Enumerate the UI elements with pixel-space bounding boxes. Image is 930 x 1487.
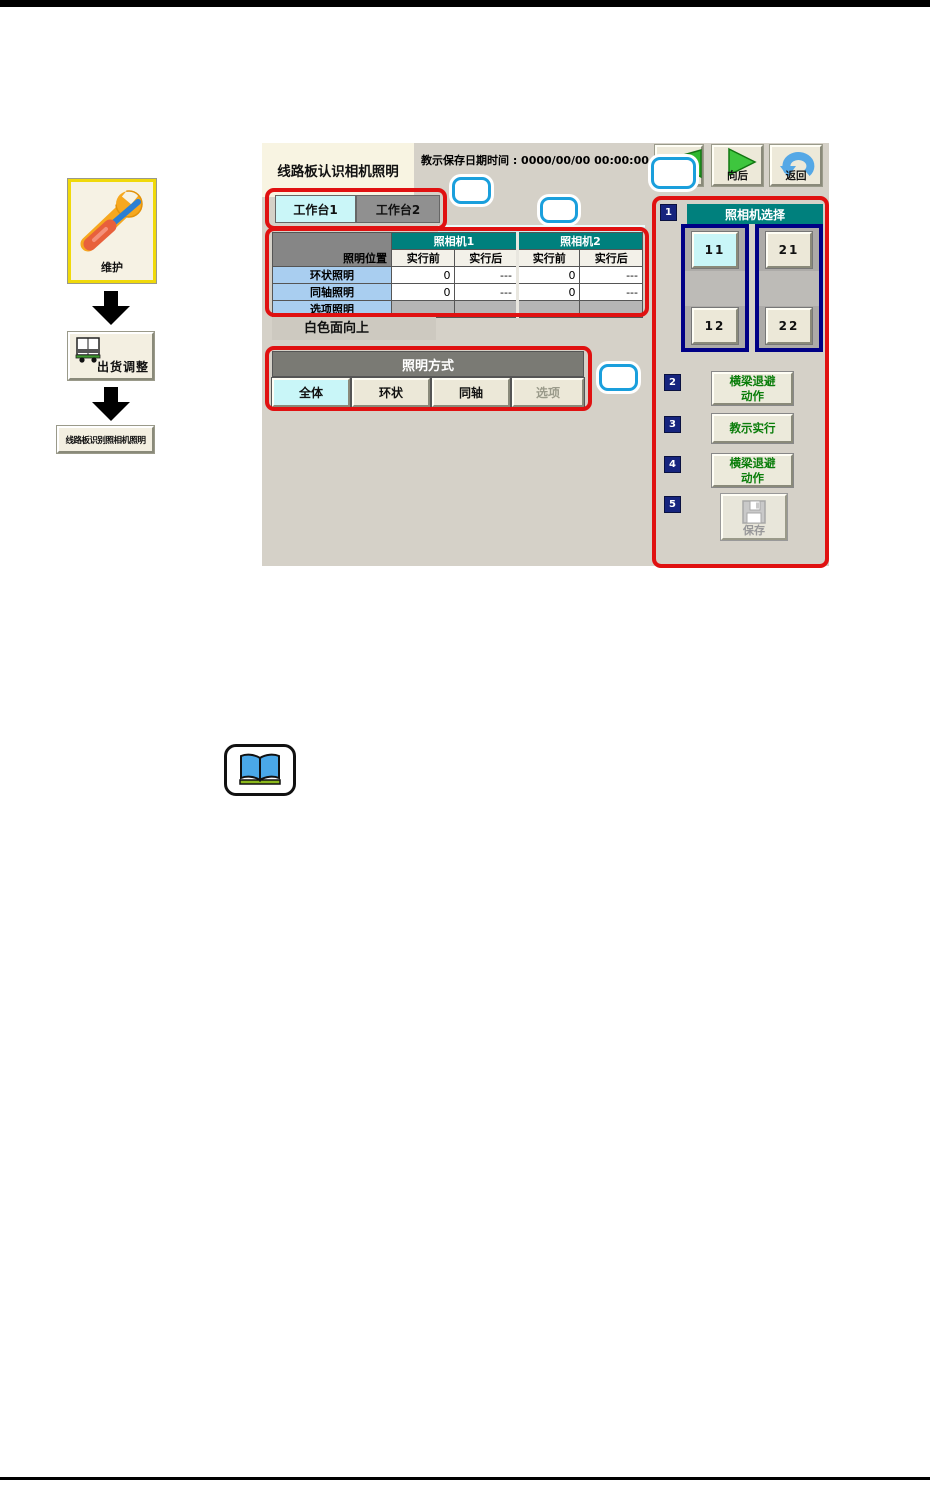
step-5-badge: 5 — [664, 496, 681, 513]
wrench-screwdriver-icon — [76, 186, 148, 256]
subheader-after-2: 实行后 — [580, 250, 643, 267]
forward-label: 向后 — [714, 168, 761, 183]
page-bottom-rule — [0, 1477, 930, 1480]
option-cam1-after — [455, 301, 518, 318]
lighting-mode-header: 照明方式 — [272, 351, 584, 377]
table-row: 环状照明 0 --- 0 --- — [273, 267, 643, 284]
forward-button[interactable]: 向后 — [712, 145, 763, 186]
option-cam2-before — [517, 301, 580, 318]
subheader-before-2: 实行前 — [517, 250, 580, 267]
teach-execute-button[interactable]: 教示实行 — [712, 414, 793, 443]
callout-box-tabs — [452, 177, 491, 204]
down-arrow — [92, 387, 130, 421]
mode-button-ring[interactable]: 环状 — [352, 378, 430, 407]
page-top-rule — [0, 0, 930, 7]
row-label-coaxial: 同轴照明 — [273, 284, 392, 301]
subheader-after-1: 实行后 — [455, 250, 518, 267]
camera1-header: 照相机1 — [391, 233, 517, 250]
camera-column-spacer — [759, 271, 819, 306]
machine-screen: 线路板认识相机照明 教示保存日期时间 : 0000/00/00 00:00:00… — [262, 143, 829, 566]
step-2-badge: 2 — [664, 374, 681, 391]
subheader-before-1: 实行前 — [391, 250, 455, 267]
coaxial-cam2-before[interactable]: 0 — [517, 284, 580, 301]
callout-box-strip — [540, 197, 578, 223]
maintenance-button[interactable]: 维护 — [68, 179, 156, 283]
coaxial-cam1-after: --- — [455, 284, 518, 301]
mode-button-coaxial[interactable]: 同轴 — [432, 378, 510, 407]
camera2-header: 照相机2 — [517, 233, 642, 250]
mode-button-all[interactable]: 全体 — [272, 378, 350, 407]
table-row: 选项照明 — [273, 301, 643, 318]
step-1-badge: 1 — [660, 204, 677, 221]
row-label-option: 选项照明 — [273, 301, 392, 318]
table-corner-label: 照明位置 — [273, 233, 392, 267]
camera-button-22[interactable]: 22 — [766, 308, 812, 344]
camera-column-1: 11 12 — [681, 224, 749, 352]
shipment-adjust-label: 出货调整 — [97, 358, 149, 375]
ring-cam2-after: --- — [580, 267, 643, 284]
lighting-table: 照明位置 照相机1 照相机2 实行前 实行后 实行前 实行后 环状照明 0 --… — [272, 232, 643, 318]
table-row: 同轴照明 0 --- 0 --- — [273, 284, 643, 301]
tab-worktable-2[interactable]: 工作台2 — [356, 195, 440, 223]
maintenance-label: 维护 — [71, 259, 153, 275]
white-face-up-note: 白色面向上 — [272, 317, 436, 340]
board-camera-lighting-button[interactable]: 线路板识别照相机照明 — [57, 426, 154, 453]
camera-button-11[interactable]: 11 — [692, 232, 738, 268]
screen-title: 线路板认识相机照明 — [262, 143, 414, 197]
shipment-adjust-button[interactable]: 出货调整 — [68, 332, 154, 380]
save-button: 保存 — [721, 494, 787, 540]
camera-button-21[interactable]: 21 — [766, 232, 812, 268]
teach-save-datetime: 教示保存日期时间 : 0000/00/00 00:00:00 — [421, 152, 653, 168]
down-arrow — [92, 291, 130, 325]
beam-retract-button-2[interactable]: 横梁退避 动作 — [712, 454, 793, 487]
callout-box-mode — [599, 364, 638, 391]
step-4-badge: 4 — [664, 456, 681, 473]
callout-box-nav — [651, 157, 696, 189]
manual-reference-icon — [224, 744, 296, 796]
beam-retract-button[interactable]: 横梁退避 动作 — [712, 372, 793, 405]
board-camera-lighting-label: 线路板识别照相机照明 — [65, 434, 145, 446]
camera-select-header: 照相机选择 — [687, 204, 823, 224]
ring-cam1-after: --- — [455, 267, 518, 284]
coaxial-cam2-after: --- — [580, 284, 643, 301]
camera-column-2: 21 22 — [755, 224, 823, 352]
return-label: 返回 — [772, 168, 820, 183]
coaxial-cam1-before[interactable]: 0 — [391, 284, 455, 301]
save-label: 保存 — [743, 522, 765, 538]
step-3-badge: 3 — [664, 416, 681, 433]
camera-column-spacer — [685, 271, 745, 306]
tab-worktable-1[interactable]: 工作台1 — [275, 195, 356, 223]
option-cam2-after — [580, 301, 643, 318]
camera-button-12[interactable]: 12 — [692, 308, 738, 344]
ring-cam2-before[interactable]: 0 — [517, 267, 580, 284]
row-label-ring: 环状照明 — [273, 267, 392, 284]
ring-cam1-before[interactable]: 0 — [391, 267, 455, 284]
return-button[interactable]: 返回 — [770, 145, 822, 186]
option-cam1-before — [391, 301, 455, 318]
mode-button-option: 选项 — [512, 378, 584, 407]
